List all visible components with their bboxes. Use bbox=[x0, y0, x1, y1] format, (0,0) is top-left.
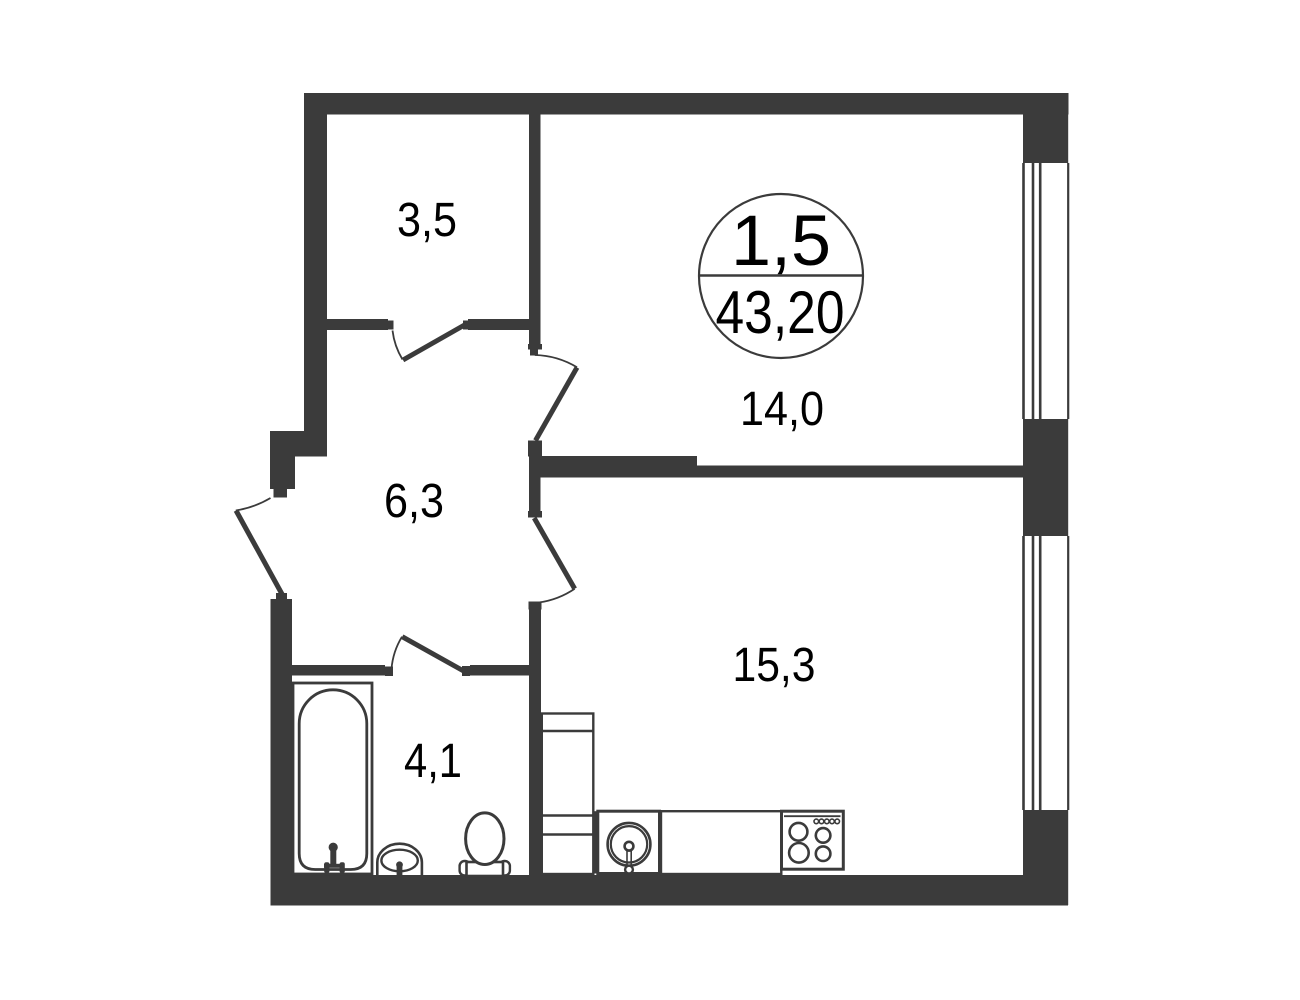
svg-text:6,3: 6,3 bbox=[384, 475, 444, 528]
svg-text:43,20: 43,20 bbox=[716, 279, 845, 346]
svg-text:15,3: 15,3 bbox=[733, 639, 816, 692]
svg-text:4,1: 4,1 bbox=[404, 735, 462, 788]
svg-text:3,5: 3,5 bbox=[397, 194, 457, 247]
svg-text:1,5: 1,5 bbox=[731, 202, 831, 281]
svg-text:14,0: 14,0 bbox=[740, 383, 824, 436]
